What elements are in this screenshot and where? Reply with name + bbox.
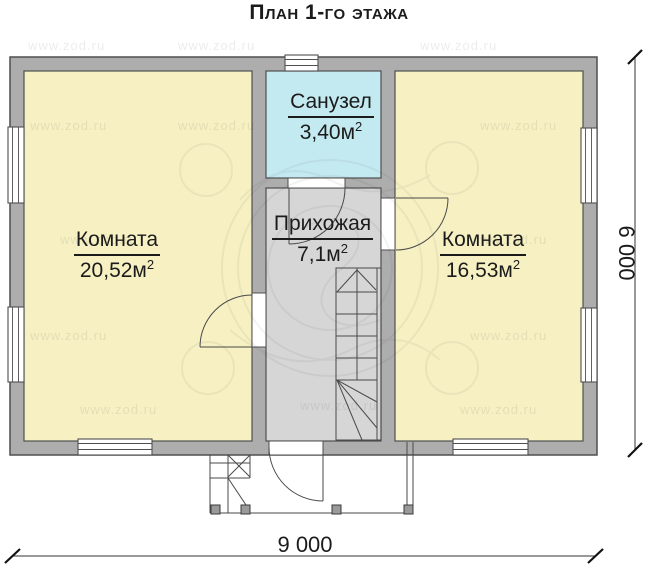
window-top-bathroom: [285, 55, 318, 71]
bathroom-area: 3,40м2: [266, 119, 396, 146]
hallway-name: Прихожая: [272, 212, 373, 240]
bathroom-label: Санузел 3,40м2: [266, 90, 396, 146]
window-bottom-right: [453, 439, 528, 455]
room-left-area: 20,52м2: [22, 257, 212, 284]
watermark-text: www.zod.ru: [80, 402, 157, 417]
dimension-width-label: 9 000: [255, 532, 355, 558]
watermark-text: www.zod.ru: [470, 328, 547, 343]
watermark-text: www.zod.ru: [28, 38, 105, 53]
room-right-name: Комната: [440, 228, 526, 256]
window-right-2: [581, 308, 597, 382]
room-left-label: Комната 20,52м2: [22, 228, 212, 284]
bathroom-name: Санузел: [288, 90, 374, 118]
watermark-text: www.zod.ru: [460, 402, 537, 417]
hallway-label: Прихожая 7,1м2: [250, 212, 395, 268]
watermark-text: www.zod.ru: [480, 118, 557, 133]
dimension-height-label: 6 000: [615, 213, 639, 293]
hallway-area: 7,1м2: [250, 241, 395, 268]
porch-post: [332, 505, 341, 514]
window-right-1: [581, 128, 597, 203]
porch-post: [211, 505, 220, 514]
window-left-1: [8, 127, 24, 203]
watermark-text: www.zod.ru: [30, 328, 107, 343]
watermark-text: www.zod.ru: [30, 118, 107, 133]
room-right-area: 16,53м2: [393, 257, 573, 284]
floor-plan-drawing: [0, 0, 658, 580]
porch-post: [241, 505, 250, 514]
watermark-text: www.zod.ru: [178, 38, 255, 53]
watermark-text: www.zod.ru: [420, 38, 497, 53]
floor-plan-canvas: www.zod.ru www.zod.ru www.zod.ru www.zod…: [0, 0, 658, 580]
window-bottom-left: [78, 439, 152, 455]
porch-post: [404, 505, 413, 514]
watermark-text: www.zod.ru: [178, 118, 255, 133]
window-left-2: [8, 307, 24, 382]
page-title: План 1-го этажа: [0, 1, 658, 25]
watermark-text: www.zod.ru: [300, 398, 377, 413]
room-left-name: Комната: [74, 228, 160, 256]
room-right-label: Комната 16,53м2: [393, 228, 573, 284]
